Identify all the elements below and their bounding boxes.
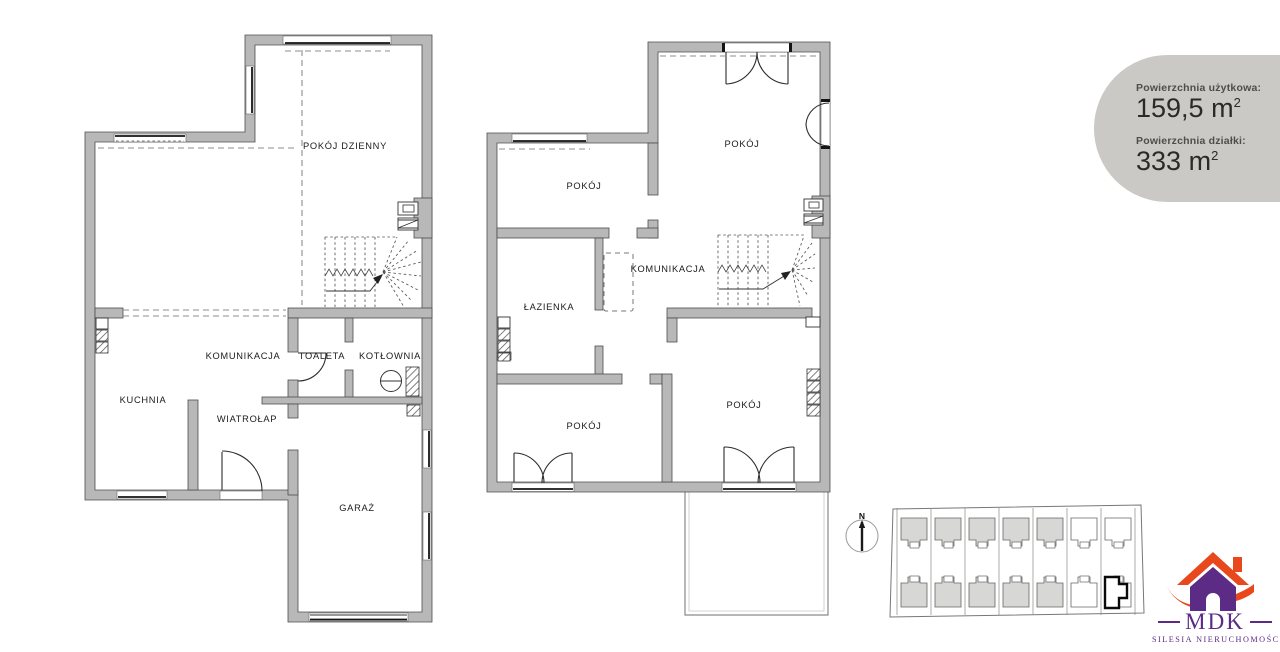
terrace (685, 492, 828, 615)
plot-area: Powierzchnia działki: 333 m2 (1136, 135, 1280, 175)
company-logo: MDK SILESIA NIERUCHOMOŚCI (1152, 548, 1278, 644)
logo-subtitle: SILESIA NIERUCHOMOŚCI (1152, 635, 1278, 644)
logo-house-icon (1165, 548, 1265, 614)
staircase-ground (325, 237, 421, 307)
compass-label: N (859, 511, 865, 521)
staircase-upper (718, 235, 815, 306)
room-label-top-right: POKÓJ (724, 139, 759, 149)
usable-area: Powierzchnia użytkowa: 159,5 m2 (1136, 82, 1280, 122)
ground-floor-windows (114, 36, 431, 621)
radiator-bedroom (807, 369, 820, 416)
room-label-top-left: POKÓJ (566, 181, 601, 191)
room-label-toilet: TOALETA (299, 351, 346, 361)
logo-rule-right (1250, 621, 1272, 623)
room-label-bottom-left: POKÓJ (566, 421, 601, 431)
room-label-hall: KOMUNIKACJA (206, 351, 281, 361)
room-label-garage: GARAŻ (339, 503, 375, 513)
wardrobe-dashed (604, 253, 633, 311)
usable-area-value: 159,5 m2 (1136, 94, 1280, 122)
room-label-living: POKÓJ DZIENNY (303, 141, 387, 151)
radiator-kitchen (96, 318, 108, 353)
upper-floor-plan: POKÓJ POKÓJ KOMUNIKACJA ŁAZIENKA POKÓJ P… (487, 42, 830, 615)
entry-door (220, 451, 262, 500)
room-label-boiler: KOTŁOWNIA (359, 351, 421, 361)
room-label-bathroom: ŁAZIENKA (524, 302, 575, 312)
logo-title: MDK (1185, 610, 1245, 633)
room-label-kitchen: KUCHNIA (120, 395, 167, 405)
ground-floor-plan: POKÓJ DZIENNY KOMUNIKACJA TOALETA KOTŁOW… (85, 35, 432, 622)
site-plan: N (846, 505, 1144, 617)
boiler (381, 367, 421, 416)
area-info-badge: Powierzchnia użytkowa: 159,5 m2 Powierzc… (1094, 55, 1280, 202)
shaft-box (806, 317, 820, 327)
radiator-bathroom (498, 317, 510, 361)
logo-rule-left (1158, 621, 1180, 623)
plot-area-value: 333 m2 (1136, 147, 1280, 175)
floor-plans-drawing: POKÓJ DZIENNY KOMUNIKACJA TOALETA KOTŁOW… (0, 0, 1280, 652)
room-label-vestibule: WIATROŁAP (217, 414, 277, 424)
compass-icon: N (846, 511, 878, 552)
room-label-hall-upper: KOMUNIKACJA (631, 264, 706, 274)
logo-title-row: MDK (1152, 610, 1278, 633)
room-label-bottom-right: POKÓJ (726, 400, 761, 410)
floorplan-sheet: POKÓJ DZIENNY KOMUNIKACJA TOALETA KOTŁOW… (0, 0, 1280, 652)
